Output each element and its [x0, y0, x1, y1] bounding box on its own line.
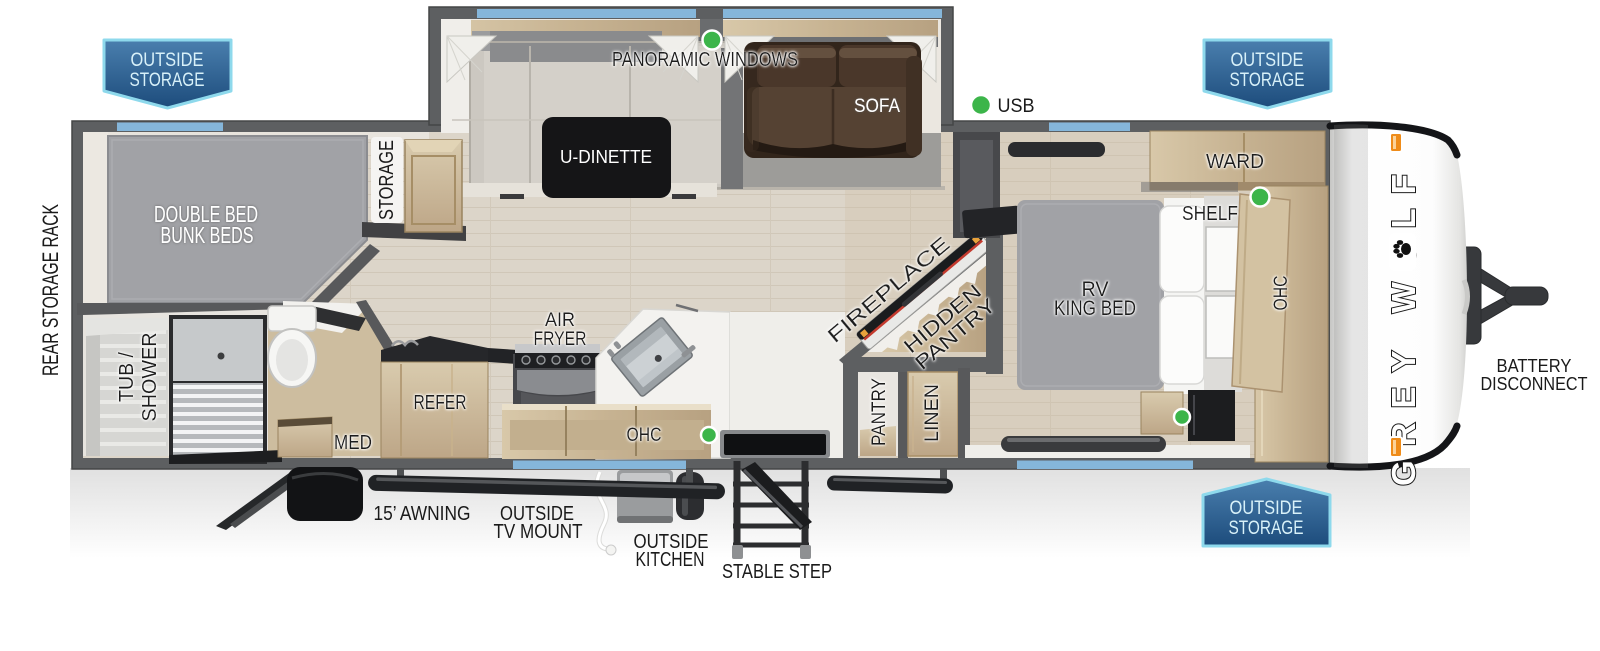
svg-text:REFER: REFER: [414, 392, 467, 414]
svg-text:AIR: AIR: [545, 310, 575, 331]
svg-text:OUTSIDE: OUTSIDE: [131, 50, 204, 71]
svg-text:REAR STORAGE RACK: REAR STORAGE RACK: [38, 204, 63, 376]
svg-text:PANORAMIC WINDOWS: PANORAMIC WINDOWS: [612, 49, 798, 71]
svg-text:OHC: OHC: [1271, 276, 1292, 311]
svg-text:KITCHEN: KITCHEN: [636, 549, 705, 571]
svg-text:STORAGE: STORAGE: [1229, 518, 1304, 539]
svg-text:TUB /: TUB /: [116, 352, 138, 402]
svg-text:SHOWER: SHOWER: [139, 333, 161, 422]
svg-text:SHELF: SHELF: [1182, 203, 1238, 225]
svg-text:WARD: WARD: [1206, 151, 1264, 173]
svg-text:PANTRY: PANTRY: [869, 378, 890, 446]
svg-text:KING BED: KING BED: [1054, 297, 1136, 320]
svg-text:DISCONNECT: DISCONNECT: [1481, 374, 1588, 394]
svg-text:MED: MED: [334, 432, 372, 454]
svg-text:STABLE STEP: STABLE STEP: [722, 561, 832, 583]
svg-text:USB: USB: [998, 96, 1035, 117]
svg-text:BUNK BEDS: BUNK BEDS: [161, 222, 254, 248]
svg-text:OUTSIDE: OUTSIDE: [1231, 50, 1304, 71]
svg-text:SOFA: SOFA: [854, 96, 900, 117]
svg-text:STORAGE: STORAGE: [1230, 70, 1305, 91]
svg-text:OHC: OHC: [627, 425, 662, 446]
svg-text:STORAGE: STORAGE: [130, 70, 205, 91]
svg-text:TV MOUNT: TV MOUNT: [494, 521, 583, 543]
svg-text:U-DINETTE: U-DINETTE: [560, 147, 652, 167]
svg-text:15’ AWNING: 15’ AWNING: [374, 503, 471, 525]
svg-text:OUTSIDE: OUTSIDE: [1230, 498, 1303, 519]
svg-text:STORAGE: STORAGE: [376, 140, 398, 220]
svg-text:FRYER: FRYER: [534, 329, 587, 350]
svg-text:LINEN: LINEN: [922, 384, 943, 442]
svg-text:BATTERY: BATTERY: [1497, 356, 1572, 376]
